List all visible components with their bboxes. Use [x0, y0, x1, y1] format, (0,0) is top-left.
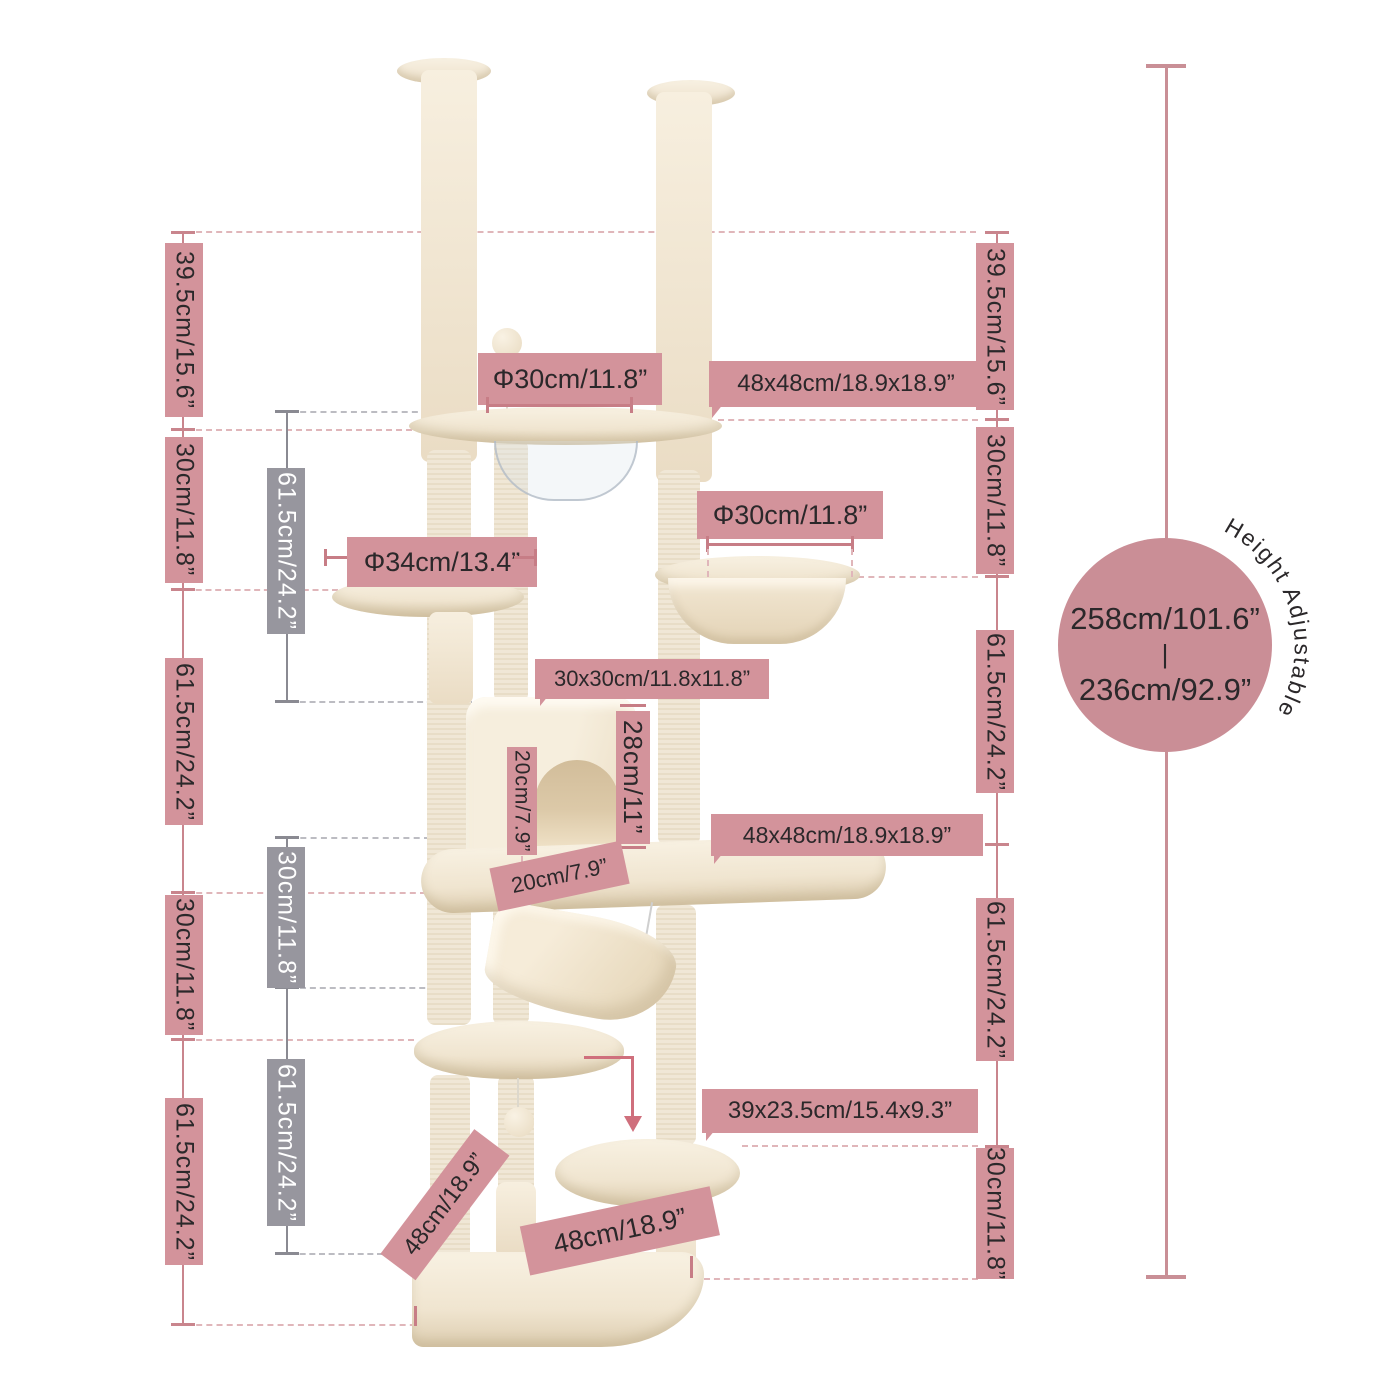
height-rule-tick-top: [1146, 64, 1186, 68]
left-measure-2: 30cm/11.8”: [165, 437, 203, 583]
gray-measure-1: 61.5cm/24.2”: [267, 468, 305, 634]
right-tick-3: [985, 575, 1009, 578]
basket-dim-line: [707, 543, 854, 546]
round-platform-tick-r1: [514, 556, 536, 559]
height-adjustable-badge: 258cm/101.6” | 236cm/92.9” Height Adjust…: [1020, 495, 1350, 805]
lower-platform: [414, 1021, 624, 1079]
round-platform-tick-l1: [325, 556, 347, 559]
basket-dim-drop-r: [851, 549, 853, 577]
condo-height-tick-top: [620, 704, 646, 707]
left-tick-3: [171, 588, 195, 591]
top-perch-dim-tick-l: [486, 397, 489, 413]
condo-size-label: 30x30cm/11.8x11.8”: [535, 659, 769, 699]
gray-measure-2: 30cm/11.8”: [267, 847, 305, 988]
product-dimension-diagram: 39.5cm/15.6” 30cm/11.8” 61.5cm/24.2” 30c…: [0, 0, 1400, 1400]
gray-tick-2c: [275, 1252, 299, 1255]
middle-platform-callout-tail: [714, 847, 728, 864]
basket-diameter-label: Φ30cm/11.8”: [697, 491, 883, 539]
right-measure-2: 30cm/11.8”: [976, 427, 1014, 574]
left-post-plush: [421, 70, 477, 462]
base-side-tick: [414, 1306, 417, 1326]
top-platform-callout-tail: [712, 398, 728, 418]
left-measure-4: 30cm/11.8”: [165, 895, 203, 1035]
dash-mid-platform: [186, 1039, 414, 1041]
badge-min-height: 236cm/92.9”: [1079, 672, 1251, 707]
round-platform-tick-l2: [324, 549, 327, 566]
right-post-sisal-lower: [656, 905, 696, 1145]
left-tick-2: [171, 428, 195, 431]
top-perch-diameter-label: Φ30cm/11.8”: [478, 353, 662, 405]
right-measure-3: 61.5cm/24.2”: [976, 630, 1014, 793]
step-arrow-horizontal: [584, 1056, 634, 1059]
right-tick-2: [985, 418, 1009, 421]
dash-base-right: [704, 1278, 978, 1280]
step-platform-size-label: 39x23.5cm/15.4x9.3”: [702, 1089, 978, 1133]
dash-step-platform: [742, 1145, 978, 1147]
base-front-tick: [690, 1256, 693, 1278]
left-tick-6: [171, 1323, 195, 1326]
condo-height-tick-bottom: [620, 846, 646, 849]
condo-door-height-label: 20cm/7.9”: [507, 747, 537, 855]
basket-dim-drop-l: [707, 549, 709, 577]
top-platform-size-label: 48x48cm/18.9x18.9”: [709, 361, 983, 407]
right-post-sisal: [658, 470, 700, 845]
condo-callout-tail: [540, 690, 553, 706]
dash-hammock-top: [186, 892, 426, 894]
left-tick-5: [171, 1038, 195, 1041]
gray-tick-2a: [275, 836, 299, 839]
right-measure-5: 30cm/11.8”: [976, 1148, 1014, 1279]
step-arrow-vertical: [631, 1056, 634, 1118]
right-measure-4: 61.5cm/24.2”: [976, 898, 1014, 1061]
step-platform: [555, 1139, 740, 1207]
left-measure-5: 61.5cm/24.2”: [165, 1098, 203, 1265]
gray-tick-1b: [275, 700, 299, 703]
lower-ball-toy: [504, 1107, 534, 1137]
dash-top-platform-r: [718, 419, 978, 421]
badge-max-height: 258cm/101.6”: [1070, 601, 1260, 636]
left-tick-1: [171, 231, 195, 234]
middle-platform-size-label: 48x48cm/18.9x18.9”: [711, 814, 983, 856]
dash-round-platform: [186, 589, 338, 591]
right-tick-4: [985, 843, 1009, 846]
left-tick-4: [171, 891, 195, 894]
top-perch-dim-line: [487, 404, 633, 407]
left-measure-3: 61.5cm/24.2”: [165, 658, 203, 825]
top-perch-dim-tick-r: [630, 397, 633, 413]
badge-divider: |: [1162, 639, 1169, 669]
dash-base-bottom: [186, 1324, 426, 1326]
round-platform-tick-r2: [534, 549, 537, 566]
left-measure-1: 39.5cm/15.6”: [165, 243, 203, 417]
dash-top-platform-l: [186, 429, 422, 431]
dash-top-platform-g: [290, 411, 428, 413]
height-rule-tick-bottom: [1146, 1275, 1186, 1279]
gray-measure-3: 61.5cm/24.2”: [267, 1059, 305, 1226]
dash-big-platform-g: [290, 837, 430, 839]
step-platform-callout-tail: [706, 1124, 720, 1141]
top-platform: [409, 407, 722, 445]
right-tick-1: [985, 231, 1009, 234]
lower-ball-string: [517, 1078, 519, 1110]
round-platform-support: [429, 612, 473, 704]
condo-height-label: 28cm/11”: [616, 711, 650, 844]
dash-ceiling: [186, 231, 976, 233]
gray-tick-1a: [275, 410, 299, 413]
round-platform-diameter-label: Φ34cm/13.4”: [347, 537, 537, 587]
dash-basket-rim: [858, 576, 978, 578]
step-arrow-head: [624, 1116, 642, 1132]
